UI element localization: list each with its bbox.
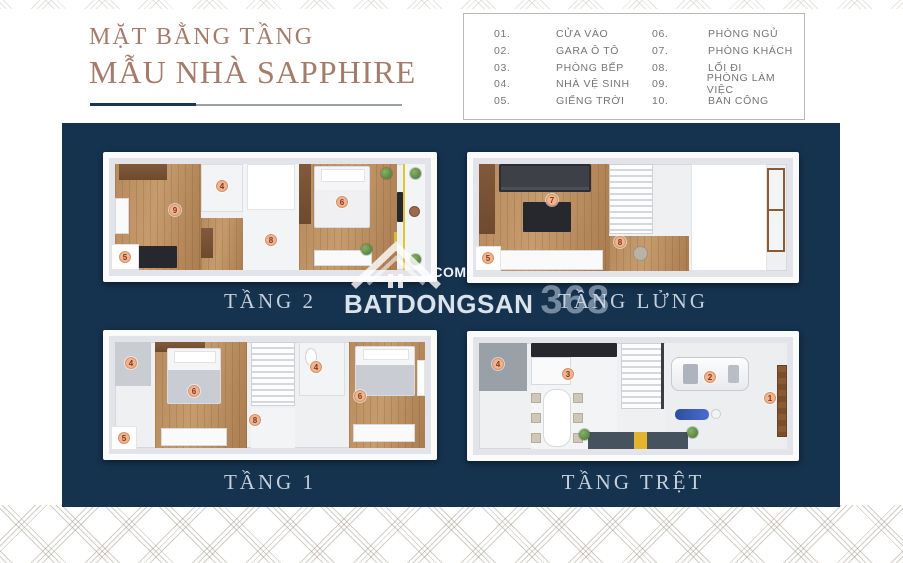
- room-marker: 7: [546, 194, 558, 206]
- legend-num: 10.: [652, 95, 686, 107]
- legend-num: 06.: [652, 28, 686, 40]
- legend-item: 07.PHÒNG KHÁCH: [652, 43, 802, 59]
- room-marker: 5: [118, 432, 130, 444]
- plant: [381, 168, 392, 179]
- legend-label: GIẾNG TRỜI: [528, 95, 624, 107]
- plan-label-tang-lung: TẦNG LỬNG: [467, 289, 799, 314]
- dining-table: [543, 389, 571, 447]
- legend-num: 08.: [652, 62, 686, 74]
- chair: [531, 413, 541, 423]
- title-line-2: MẪU NHÀ SAPPHIRE: [89, 52, 416, 92]
- room-marker: 6: [354, 390, 366, 402]
- blanket: [356, 365, 414, 395]
- kitchen-counter: [495, 250, 603, 270]
- cabinet: [201, 228, 213, 258]
- room-marker: 9: [169, 204, 181, 216]
- legend-box: 01.CỬA VÀO 02.GARA Ô TÔ 03.PHÒNG BẾP 04.…: [463, 13, 805, 120]
- chair: [573, 393, 583, 403]
- stairs: [609, 164, 653, 234]
- plant: [579, 429, 590, 440]
- balcony-plant: [410, 168, 421, 179]
- plant: [687, 427, 698, 438]
- room-marker: 2: [704, 371, 716, 383]
- cabinet: [119, 164, 167, 180]
- wardrobe: [299, 164, 311, 224]
- legend-label: PHÒNG BẾP: [528, 62, 624, 74]
- plan-card-tang-2: 4 9 5 8 6: [103, 152, 437, 282]
- plan-label-tang-tret: TẦNG TRỆT: [467, 470, 799, 495]
- lattice-pattern-bottom: [0, 505, 903, 563]
- skylight-void: [247, 164, 295, 210]
- motorbike: [675, 409, 709, 420]
- legend-label: GARA Ô TÔ: [528, 45, 619, 57]
- legend-num: 05.: [494, 95, 528, 107]
- legend-item: 06.PHÒNG NGỦ: [652, 26, 802, 42]
- balcony-table: [409, 206, 420, 217]
- plan-label-tang-2: TẦNG 2: [103, 289, 437, 314]
- balcony-wall-line: [403, 164, 405, 270]
- legend-column-1: 01.CỬA VÀO 02.GARA Ô TÔ 03.PHÒNG BẾP 04.…: [494, 26, 652, 109]
- legend-item: 04.NHÀ VỆ SINH: [494, 76, 652, 92]
- chair: [531, 393, 541, 403]
- helmet: [711, 409, 721, 419]
- window: [417, 360, 425, 396]
- chair: [573, 413, 583, 423]
- room-marker: 4: [125, 357, 137, 369]
- legend-num: 01.: [494, 28, 528, 40]
- room-marker: 6: [188, 385, 200, 397]
- window-pane: [769, 170, 783, 209]
- room-marker: 8: [614, 236, 626, 248]
- legend-num: 09.: [652, 78, 685, 90]
- plan-card-tang-lung: 7 5 8: [467, 152, 799, 283]
- kitchen-counter-top: [531, 343, 617, 357]
- plan-card-tang-1: 4 6 5 8 4 6: [103, 330, 437, 460]
- chair: [531, 433, 541, 443]
- legend-num: 04.: [494, 78, 528, 90]
- legend-label: BAN CÔNG: [686, 95, 769, 107]
- entry-door: [777, 365, 787, 437]
- room-marker: 4: [216, 180, 228, 192]
- desk: [353, 424, 415, 442]
- legend-item: 09.PHÒNG LÀM VIỆC: [652, 76, 802, 92]
- legend-label: CỬA VÀO: [528, 28, 608, 40]
- underline-navy-segment: [90, 103, 196, 106]
- legend-column-2: 06.PHÒNG NGỦ 07.PHÒNG KHÁCH 08.LỐI ĐI 09…: [652, 26, 802, 109]
- coffee-table: [523, 202, 571, 232]
- legend-num: 02.: [494, 45, 528, 57]
- underline-gray-segment: [196, 104, 402, 106]
- window-pane: [769, 211, 783, 250]
- pillow: [321, 169, 364, 182]
- ramp-stripe: [634, 432, 647, 449]
- room-marker: 5: [482, 252, 494, 264]
- room-marker: 4: [310, 361, 322, 373]
- legend-item: 02.GARA Ô TÔ: [494, 43, 652, 59]
- sofa: [499, 164, 591, 192]
- beanbag: [633, 246, 648, 261]
- legend-item: 10.BAN CÔNG: [652, 93, 802, 109]
- floorplan-tang-lung: 7 5 8: [473, 158, 793, 277]
- floorplan-tang-2: 4 9 5 8 6: [109, 158, 431, 276]
- desk: [161, 428, 227, 446]
- title-underline: [90, 103, 402, 106]
- floorplan-tang-1: 4 6 5 8 4 6: [109, 336, 431, 454]
- legend-num: 07.: [652, 45, 686, 57]
- room-marker: 3: [562, 368, 574, 380]
- plan-label-tang-1: TẦNG 1: [103, 470, 437, 495]
- floorplan-board: 4 9 5 8 6 TẦNG 2: [62, 123, 840, 507]
- legend-label: NHÀ VỆ SINH: [528, 78, 630, 90]
- legend-label: PHÒNG NGỦ: [686, 28, 778, 40]
- room-marker: 4: [492, 358, 504, 370]
- floorplan-tang-tret: 4 3 2 1: [473, 337, 793, 455]
- legend-item: 01.CỬA VÀO: [494, 26, 652, 42]
- room-marker: 8: [265, 234, 277, 246]
- balcony-plant: [410, 254, 421, 265]
- flyer: MẶT BẰNG TẦNG MẪU NHÀ SAPPHIRE 01.CỬA VÀ…: [0, 0, 903, 563]
- pillow: [363, 349, 409, 360]
- window: [767, 168, 785, 252]
- room-marker: 5: [119, 251, 131, 263]
- stair-railing: [661, 343, 664, 409]
- room-marker: 6: [336, 196, 348, 208]
- room-marker: 1: [764, 392, 776, 404]
- lattice-pattern-top: [0, 0, 903, 9]
- entry-ramp: [588, 432, 688, 449]
- legend-item: 05.GIẾNG TRỜI: [494, 93, 652, 109]
- bed: [355, 346, 415, 396]
- legend-num: 03.: [494, 62, 528, 74]
- car-windshield: [683, 364, 698, 384]
- open-void: [691, 164, 767, 271]
- plant: [361, 244, 372, 255]
- shelf: [479, 164, 495, 234]
- pillow: [174, 351, 216, 363]
- desk: [115, 198, 129, 234]
- title-line-1: MẶT BẰNG TẦNG: [89, 22, 416, 52]
- legend-item: 03.PHÒNG BẾP: [494, 60, 652, 76]
- legend-label: PHÒNG KHÁCH: [686, 45, 793, 57]
- stairs: [251, 342, 295, 406]
- stairs: [621, 343, 663, 409]
- car-rear-window: [728, 365, 739, 383]
- page-title: MẶT BẰNG TẦNG MẪU NHÀ SAPPHIRE: [89, 22, 416, 92]
- plan-card-tang-tret: 4 3 2 1: [467, 331, 799, 461]
- room-marker: 8: [249, 414, 261, 426]
